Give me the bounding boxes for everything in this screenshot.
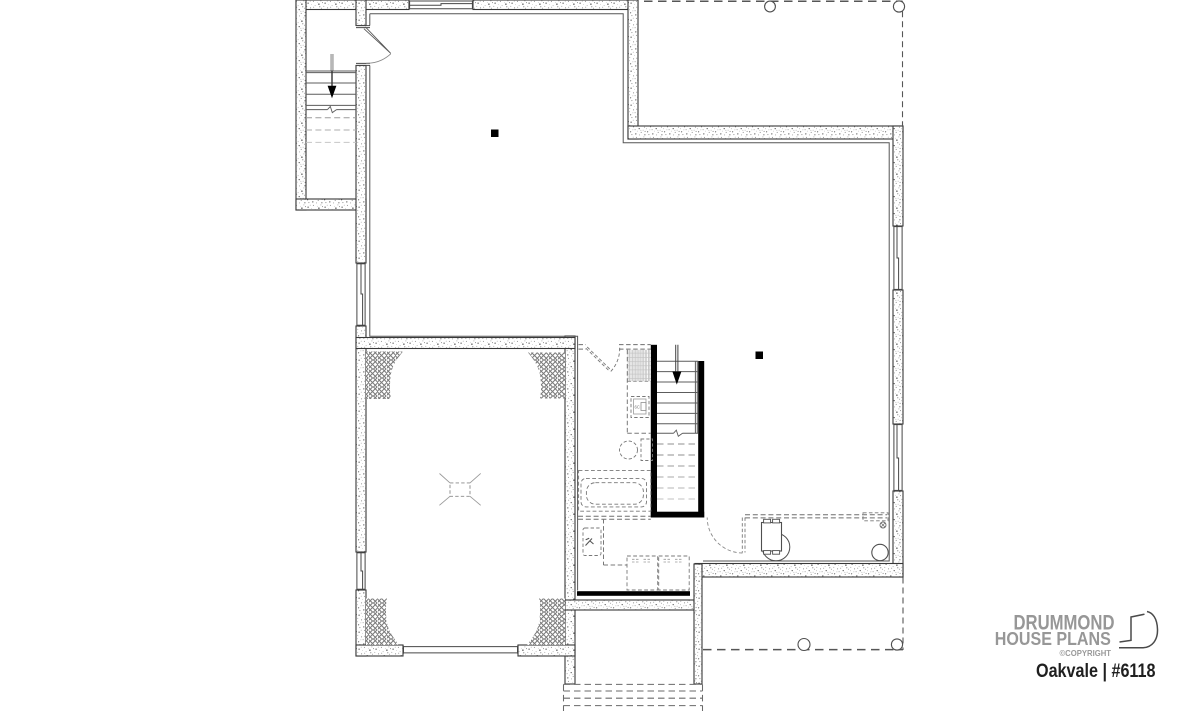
svg-text:Oakvale | #6118: Oakvale | #6118 — [1036, 661, 1156, 682]
svg-text:©COPYRIGHT: ©COPYRIGHT — [1060, 648, 1112, 658]
svg-text:6C: 6C — [635, 405, 640, 410]
svg-text:HOUSE PLANS: HOUSE PLANS — [995, 629, 1111, 649]
